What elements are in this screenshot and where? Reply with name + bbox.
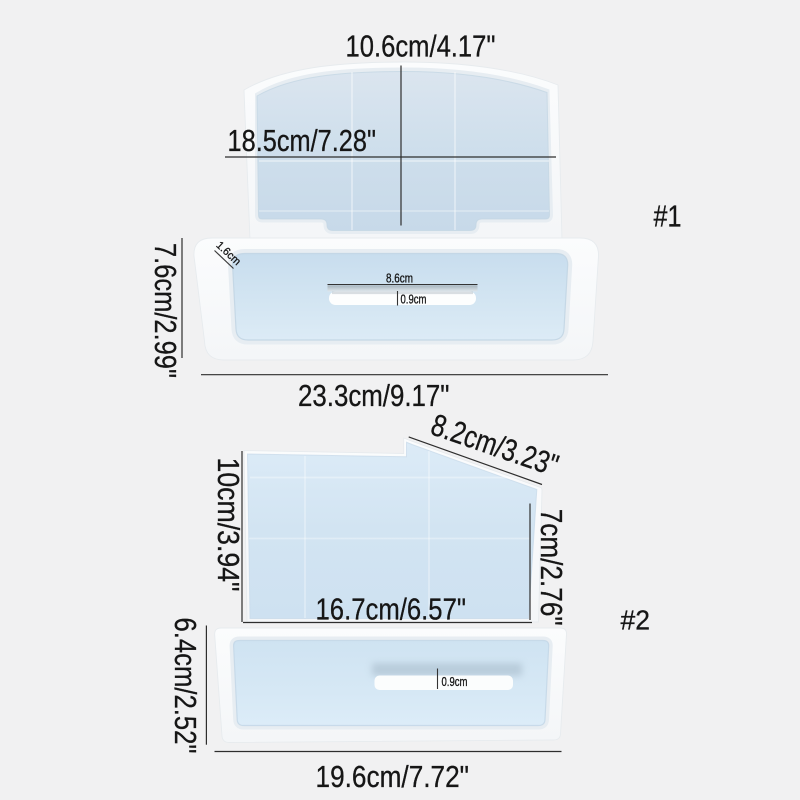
svg-text:10cm/3.94": 10cm/3.94" bbox=[211, 458, 246, 592]
svg-text:#2: #2 bbox=[621, 605, 651, 636]
svg-text:6.4cm/2.52": 6.4cm/2.52" bbox=[168, 618, 203, 754]
svg-text:8.6cm: 8.6cm bbox=[386, 272, 413, 286]
svg-text:16.7cm/6.57": 16.7cm/6.57" bbox=[316, 592, 467, 627]
svg-text:10.6cm/4.17": 10.6cm/4.17" bbox=[346, 29, 496, 64]
svg-text:19.6cm/7.72": 19.6cm/7.72" bbox=[316, 759, 470, 794]
svg-text:0.9cm: 0.9cm bbox=[442, 675, 468, 689]
svg-text:0.9cm: 0.9cm bbox=[401, 293, 427, 307]
svg-text:7cm/2.76": 7cm/2.76" bbox=[534, 509, 569, 626]
svg-text:23.3cm/9.17": 23.3cm/9.17" bbox=[298, 378, 450, 413]
svg-text:#1: #1 bbox=[654, 199, 682, 234]
svg-text:7.6cm/2.99": 7.6cm/2.99" bbox=[148, 243, 183, 378]
svg-text:18.5cm/7.28": 18.5cm/7.28" bbox=[228, 123, 377, 158]
